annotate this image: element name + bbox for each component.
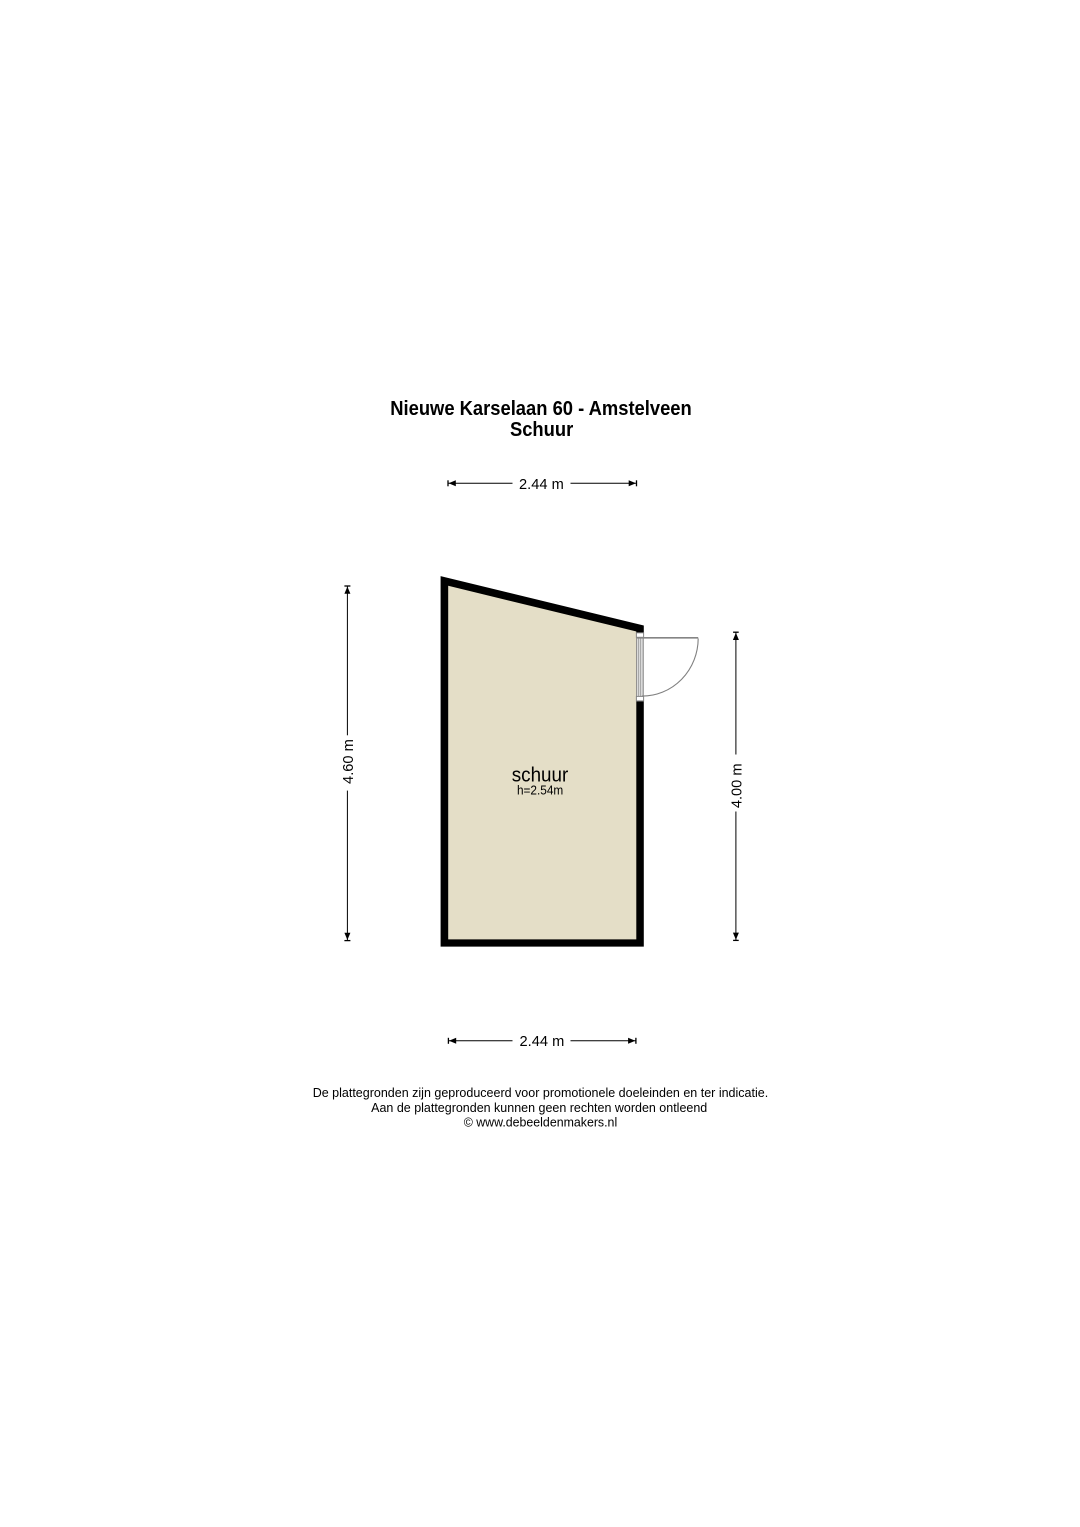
svg-text:2.44 m: 2.44 m [519, 476, 564, 493]
svg-text:© www.debeeldenmakers.nl: © www.debeeldenmakers.nl [464, 1114, 618, 1129]
svg-text:4.60 m: 4.60 m [340, 739, 357, 784]
svg-text:Aan de plattegronden kunnen ge: Aan de plattegronden kunnen geen rechten… [371, 1100, 707, 1115]
svg-text:Schuur: Schuur [510, 419, 573, 441]
svg-text:2.44 m: 2.44 m [520, 1033, 565, 1050]
svg-text:De plattegronden zijn geproduc: De plattegronden zijn geproduceerd voor … [313, 1085, 769, 1100]
svg-text:h=2.54m: h=2.54m [517, 782, 563, 797]
svg-text:4.00 m: 4.00 m [728, 763, 745, 808]
svg-text:Nieuwe Karselaan 60 - Amstelve: Nieuwe Karselaan 60 - Amstelveen [390, 398, 692, 420]
